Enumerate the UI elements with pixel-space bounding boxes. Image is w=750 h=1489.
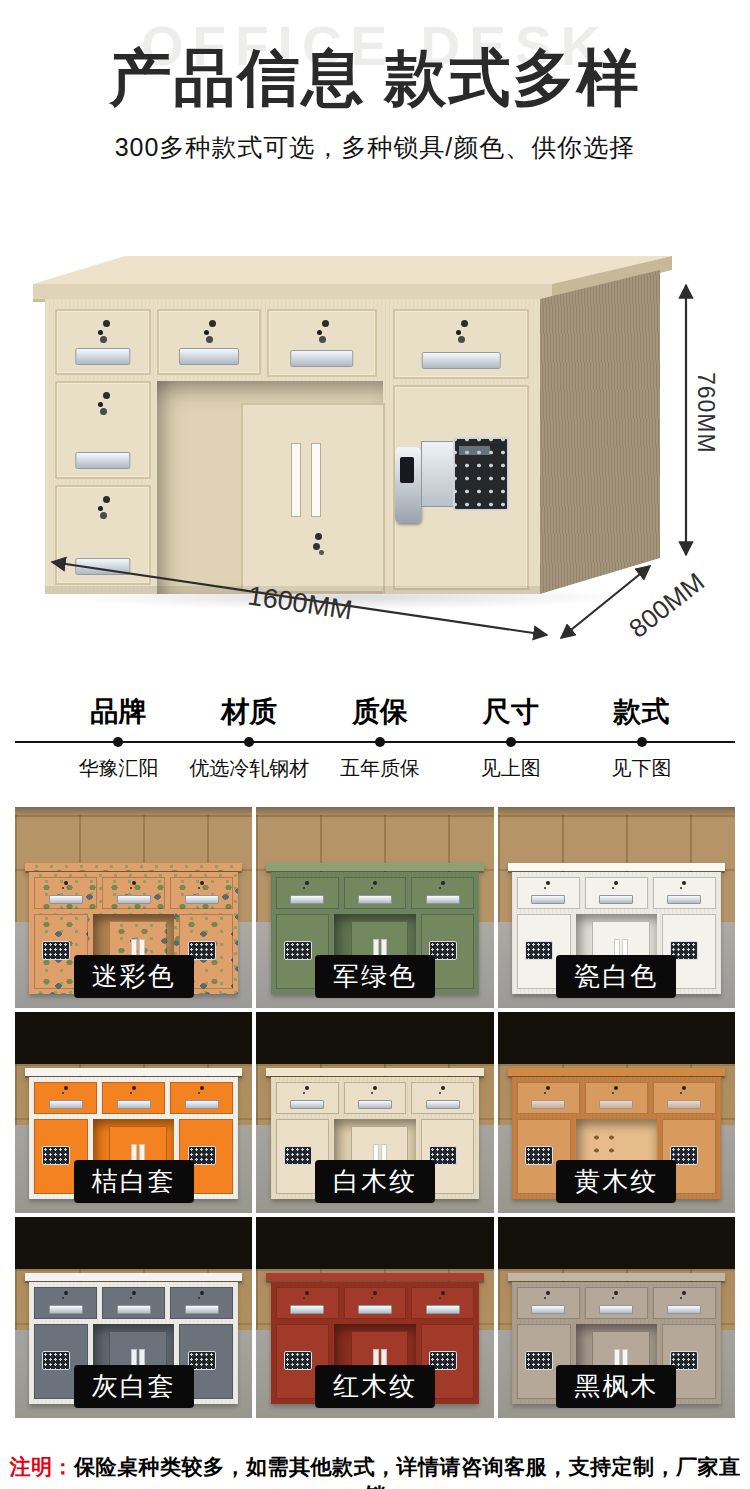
footnote: 注明：保险桌种类较多，如需其他款式，详情请咨询客服，支持定制，厂家直销 — [0, 1453, 750, 1489]
keyhole-icon — [200, 1086, 204, 1090]
spec-dot — [244, 737, 254, 747]
keyhole-icon — [132, 881, 136, 885]
mini-desk-top — [508, 1273, 725, 1281]
keyhole-icon — [132, 1291, 136, 1295]
drawer-handle — [531, 1305, 565, 1314]
mini-drawer — [517, 1082, 580, 1114]
drawer-handle — [49, 895, 83, 904]
variant-photo: 黄木纹 — [498, 1012, 735, 1213]
spec-label: 尺寸 — [445, 695, 576, 729]
keyhole-icon — [441, 1291, 445, 1295]
spec-dot — [637, 737, 647, 747]
mini-drawer — [585, 1287, 648, 1319]
drawer-handle — [426, 1100, 460, 1109]
drawer-handle — [426, 895, 460, 904]
spec-col-warranty: 质保 五年质保 — [315, 695, 446, 782]
mini-drawer — [170, 1082, 233, 1114]
spec-label: 材质 — [184, 695, 315, 729]
keyhole-icon — [373, 1086, 377, 1090]
spec-col-size: 尺寸 见上图 — [445, 695, 576, 782]
keyhole-icon — [441, 1086, 445, 1090]
drawer-handle — [599, 1100, 633, 1109]
variant-photo: 桔白套 — [15, 1012, 252, 1213]
keyhole-icon — [546, 1086, 550, 1090]
variant-label: 白木纹 — [315, 1160, 435, 1203]
keypad-icon — [525, 941, 553, 960]
variant-label: 桔白套 — [74, 1160, 194, 1203]
keypad-icon — [284, 941, 312, 960]
spec-dot — [113, 737, 123, 747]
keyhole-icon — [64, 1086, 68, 1090]
spec-strip: 品牌 华豫汇阳 材质 优选冷轧钢材 质保 五年质保 尺寸 见上图 款式 — [0, 695, 750, 795]
mini-desk-top — [508, 1068, 725, 1076]
keyhole-icon — [305, 1291, 309, 1295]
mini-drawer — [585, 1082, 648, 1114]
drawer-handle — [117, 1100, 151, 1109]
mini-drawer — [653, 1082, 716, 1114]
variant-card: 瓷白色 — [498, 807, 735, 1008]
keypad-icon — [284, 1351, 312, 1370]
mini-drawer — [170, 1287, 233, 1319]
spec-value: 五年质保 — [315, 755, 446, 782]
keyhole-icon — [200, 881, 204, 885]
drawer-handle — [358, 1305, 392, 1314]
mini-drawer-row — [276, 1287, 475, 1319]
spec-columns: 品牌 华豫汇阳 材质 优选冷轧钢材 质保 五年质保 尺寸 见上图 款式 — [53, 695, 707, 782]
drawer-handle — [426, 1305, 460, 1314]
variant-photo: 灰白套 — [15, 1217, 252, 1418]
variant-card: 桔白套 — [15, 1012, 252, 1213]
spec-col-brand: 品牌 华豫汇阳 — [53, 695, 184, 782]
mini-drawer — [34, 1287, 97, 1319]
drawer-handle — [49, 1305, 83, 1314]
mini-drawer — [411, 1287, 474, 1319]
mini-drawer-row — [517, 877, 716, 909]
mini-desk-top — [266, 863, 483, 871]
mini-desk-top — [25, 1273, 242, 1281]
drawer-handle — [599, 895, 633, 904]
mini-drawer — [411, 1082, 474, 1114]
product-info-page: OFFICE DESK 产品信息 款式多样 300多种款式可选，多种锁具/颜色、… — [0, 0, 750, 1489]
variant-card: 黑枫木 — [498, 1217, 735, 1418]
spec-col-material: 材质 优选冷轧钢材 — [184, 695, 315, 782]
keyhole-icon — [546, 881, 550, 885]
drawer-handle — [185, 1305, 219, 1314]
page-header: OFFICE DESK 产品信息 款式多样 300多种款式可选，多种锁具/颜色、… — [0, 0, 750, 200]
mini-drawer — [585, 877, 648, 909]
mini-desk-top — [266, 1273, 483, 1281]
drawer-handle — [667, 1100, 701, 1109]
spec-label: 款式 — [576, 695, 707, 729]
keyhole-icon — [373, 1291, 377, 1295]
drawer-handle — [185, 1100, 219, 1109]
mini-drawer — [653, 1287, 716, 1319]
mini-drawer — [344, 1082, 407, 1114]
variant-card: 迷彩色 — [15, 807, 252, 1008]
dimension-label-height: 760MM — [692, 372, 719, 454]
variant-label: 红木纹 — [315, 1365, 435, 1408]
footnote-prefix: 注明： — [10, 1455, 75, 1478]
mini-drawer — [34, 1082, 97, 1114]
spec-value: 优选冷轧钢材 — [184, 755, 315, 782]
mini-drawer — [653, 877, 716, 909]
spec-label: 品牌 — [53, 695, 184, 729]
spec-dot — [375, 737, 385, 747]
mini-drawer-row — [517, 1082, 716, 1114]
mini-drawer-row — [276, 877, 475, 909]
mini-desk-top — [25, 863, 242, 871]
spec-value: 见下图 — [576, 755, 707, 782]
drawer-handle — [358, 895, 392, 904]
mini-desk-top — [266, 1068, 483, 1076]
keyhole-icon — [546, 1291, 550, 1295]
drawer-handle — [185, 895, 219, 904]
keypad-icon — [42, 1146, 70, 1165]
mini-drawer-row — [34, 877, 233, 909]
mini-drawer — [102, 1082, 165, 1114]
variant-photo: 红木纹 — [256, 1217, 493, 1418]
mini-drawer — [34, 877, 97, 909]
mini-drawer — [344, 1287, 407, 1319]
mini-desk-top — [25, 1068, 242, 1076]
variant-photo: 瓷白色 — [498, 807, 735, 1008]
keypad-icon — [525, 1351, 553, 1370]
page-title: 产品信息 款式多样 — [0, 36, 750, 120]
variant-grid: 迷彩色 — [15, 807, 735, 1418]
keyhole-icon — [682, 1086, 686, 1090]
keypad-icon — [42, 1351, 70, 1370]
page-subtitle: 300多种款式可选，多种锁具/颜色、供你选择 — [0, 131, 750, 164]
drawer-handle — [49, 1100, 83, 1109]
variant-card: 军绿色 — [256, 807, 493, 1008]
variant-label: 军绿色 — [315, 955, 435, 998]
drawer-handle — [117, 895, 151, 904]
keyhole-icon — [64, 1291, 68, 1295]
mini-drawer — [517, 1287, 580, 1319]
footnote-text: 保险桌种类较多，如需其他款式，详情请咨询客服，支持定制，厂家直销 — [74, 1455, 741, 1489]
spec-value: 华豫汇阳 — [53, 755, 184, 782]
keyhole-icon — [614, 1291, 618, 1295]
spec-col-style: 款式 见下图 — [576, 695, 707, 782]
drawer-handle — [117, 1305, 151, 1314]
mini-drawer — [344, 877, 407, 909]
drawer-handle — [290, 895, 324, 904]
variant-photo: 黑枫木 — [498, 1217, 735, 1418]
spec-label: 质保 — [315, 695, 446, 729]
variant-card: 灰白套 — [15, 1217, 252, 1418]
drawer-handle — [358, 1100, 392, 1109]
keyhole-icon — [614, 1086, 618, 1090]
variant-label: 迷彩色 — [74, 955, 194, 998]
drawer-handle — [599, 1305, 633, 1314]
mini-drawer — [276, 877, 339, 909]
mini-drawer — [517, 877, 580, 909]
mini-drawer-row — [276, 1082, 475, 1114]
mini-desk-top — [508, 863, 725, 871]
keypad-icon — [525, 1146, 553, 1165]
keypad-icon — [284, 1146, 312, 1165]
mini-drawer-row — [34, 1287, 233, 1319]
spec-value: 见上图 — [445, 755, 576, 782]
drawer-handle — [531, 895, 565, 904]
mini-drawer — [276, 1082, 339, 1114]
mini-drawer-row — [517, 1287, 716, 1319]
variant-label: 黑枫木 — [556, 1365, 676, 1408]
mini-drawer-row — [34, 1082, 233, 1114]
keyhole-icon — [200, 1291, 204, 1295]
variant-card: 红木纹 — [256, 1217, 493, 1418]
keyhole-icon — [614, 881, 618, 885]
variant-photo: 白木纹 — [256, 1012, 493, 1213]
drawer-handle — [667, 895, 701, 904]
keyhole-icon — [132, 1086, 136, 1090]
dimension-figure: 760MM 1600MM 800MM — [0, 228, 750, 673]
drawer-handle — [531, 1100, 565, 1109]
variant-label: 黄木纹 — [556, 1160, 676, 1203]
keyhole-icon — [682, 881, 686, 885]
spec-dot — [506, 737, 516, 747]
keyhole-icon — [373, 881, 377, 885]
variant-card: 白木纹 — [256, 1012, 493, 1213]
keyhole-icon — [64, 881, 68, 885]
drawer-handle — [667, 1305, 701, 1314]
keyhole-icon — [305, 1086, 309, 1090]
mini-drawer — [170, 877, 233, 909]
drawer-handle — [290, 1100, 324, 1109]
variant-photo: 迷彩色 — [15, 807, 252, 1008]
mini-drawer — [102, 877, 165, 909]
variant-label: 灰白套 — [74, 1365, 194, 1408]
keyhole-icon — [305, 881, 309, 885]
variant-label: 瓷白色 — [556, 955, 676, 998]
mini-drawer — [411, 877, 474, 909]
variant-card: 黄木纹 — [498, 1012, 735, 1213]
keyhole-icon — [441, 881, 445, 885]
variant-photo: 军绿色 — [256, 807, 493, 1008]
keypad-icon — [42, 941, 70, 960]
keyhole-icon — [682, 1291, 686, 1295]
mini-drawer — [102, 1287, 165, 1319]
drawer-handle — [290, 1305, 324, 1314]
mini-drawer — [276, 1287, 339, 1319]
